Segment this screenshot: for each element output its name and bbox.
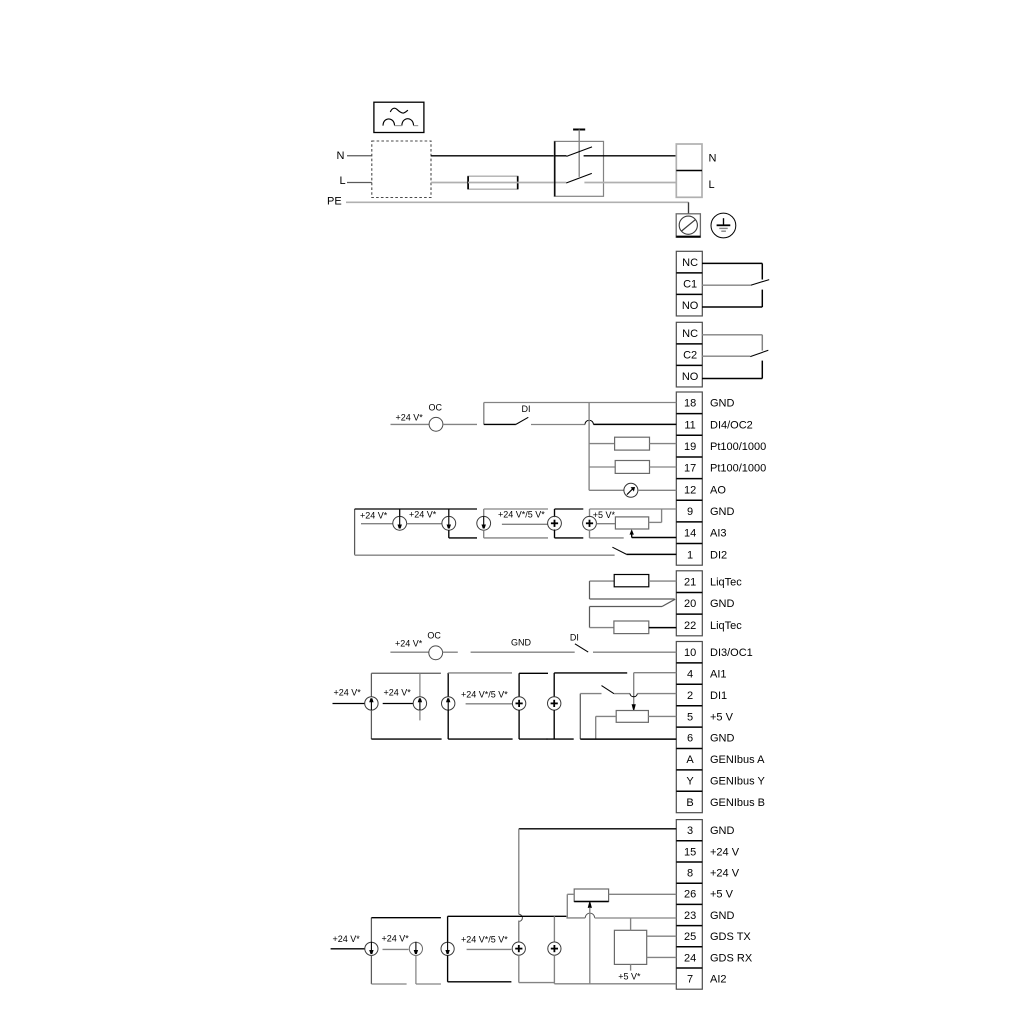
svg-text:23: 23 xyxy=(684,910,696,922)
svg-text:DI3/OC1: DI3/OC1 xyxy=(710,647,753,659)
svg-text:A: A xyxy=(686,754,694,766)
svg-text:+24 V*: +24 V* xyxy=(395,639,423,649)
svg-text:3: 3 xyxy=(687,825,693,837)
svg-text:GDS RX: GDS RX xyxy=(710,952,753,964)
svg-text:22: 22 xyxy=(684,620,696,632)
svg-text:Pt100/1000: Pt100/1000 xyxy=(710,441,766,453)
svg-text:AO: AO xyxy=(710,484,726,496)
svg-text:DI: DI xyxy=(522,404,531,414)
svg-text:DI4/OC2: DI4/OC2 xyxy=(710,419,753,431)
svg-text:Y: Y xyxy=(686,776,694,788)
svg-text:+5 V: +5 V xyxy=(710,889,734,901)
svg-text:+24 V: +24 V xyxy=(710,868,740,880)
svg-text:N: N xyxy=(709,153,717,165)
svg-text:15: 15 xyxy=(684,846,696,858)
svg-text:2: 2 xyxy=(687,690,693,702)
svg-text:GND: GND xyxy=(710,598,735,610)
svg-text:+24 V*: +24 V* xyxy=(382,934,410,944)
svg-text:NO: NO xyxy=(682,300,699,312)
svg-text:5: 5 xyxy=(687,711,693,723)
svg-text:DI: DI xyxy=(570,633,579,643)
svg-text:C1: C1 xyxy=(683,279,697,291)
svg-text:N: N xyxy=(337,150,345,162)
svg-text:11: 11 xyxy=(684,419,695,431)
svg-text:OC: OC xyxy=(427,631,441,641)
svg-text:NO: NO xyxy=(682,371,699,383)
svg-text:NC: NC xyxy=(682,328,698,340)
svg-text:20: 20 xyxy=(684,598,696,610)
svg-text:NC: NC xyxy=(682,257,698,269)
svg-text:9: 9 xyxy=(687,506,693,518)
svg-text:AI2: AI2 xyxy=(710,974,727,986)
svg-text:GND: GND xyxy=(710,825,735,837)
svg-text:12: 12 xyxy=(684,484,696,496)
svg-text:PE: PE xyxy=(327,196,342,208)
svg-text:4: 4 xyxy=(687,669,693,681)
svg-text:+24 V*: +24 V* xyxy=(334,688,362,698)
svg-text:GND: GND xyxy=(710,506,735,518)
svg-text:L: L xyxy=(340,175,346,187)
svg-text:L: L xyxy=(709,179,715,191)
svg-text:+5 V*: +5 V* xyxy=(593,510,616,520)
svg-text:+24 V*: +24 V* xyxy=(396,413,424,423)
svg-text:+24 V: +24 V xyxy=(710,846,740,858)
svg-text:+24 V*: +24 V* xyxy=(360,510,388,520)
svg-text:LiqTec: LiqTec xyxy=(710,620,742,632)
svg-text:Pt100/1000: Pt100/1000 xyxy=(710,463,766,475)
svg-text:1: 1 xyxy=(687,549,693,561)
svg-text:7: 7 xyxy=(687,974,693,986)
svg-text:OC: OC xyxy=(429,403,443,413)
svg-text:AI3: AI3 xyxy=(710,528,727,540)
svg-text:21: 21 xyxy=(684,577,696,589)
svg-text:B: B xyxy=(686,797,693,809)
svg-text:+24 V*/5 V*: +24 V*/5 V* xyxy=(461,935,508,945)
svg-text:19: 19 xyxy=(684,441,696,453)
svg-text:+24 V*/5 V*: +24 V*/5 V* xyxy=(498,510,545,520)
svg-text:GDS TX: GDS TX xyxy=(710,931,751,943)
svg-text:17: 17 xyxy=(684,463,696,475)
svg-text:DI2: DI2 xyxy=(710,549,727,561)
svg-text:8: 8 xyxy=(687,868,693,880)
svg-text:GENIbus A: GENIbus A xyxy=(710,754,765,766)
svg-text:25: 25 xyxy=(684,931,696,943)
svg-text:24: 24 xyxy=(684,952,696,964)
svg-text:LiqTec: LiqTec xyxy=(710,577,742,589)
svg-text:C2: C2 xyxy=(683,350,697,362)
svg-text:14: 14 xyxy=(684,528,696,540)
svg-text:GND: GND xyxy=(710,398,735,410)
svg-text:GENIbus B: GENIbus B xyxy=(710,797,765,809)
svg-text:GND: GND xyxy=(710,733,735,745)
svg-text:GENIbus Y: GENIbus Y xyxy=(710,776,765,788)
svg-text:+5 V: +5 V xyxy=(710,711,734,723)
svg-text:GND: GND xyxy=(511,638,532,648)
svg-text:+5 V*: +5 V* xyxy=(618,972,641,982)
svg-text:6: 6 xyxy=(687,733,693,745)
svg-text:+24 V*/5 V*: +24 V*/5 V* xyxy=(461,690,508,700)
svg-text:+24 V*: +24 V* xyxy=(333,934,361,944)
svg-text:+24 V*: +24 V* xyxy=(384,688,412,698)
svg-text:DI1: DI1 xyxy=(710,690,727,702)
svg-text:+24 V*: +24 V* xyxy=(409,510,437,520)
svg-text:10: 10 xyxy=(684,647,696,659)
svg-text:AI1: AI1 xyxy=(710,669,727,681)
svg-text:GND: GND xyxy=(710,910,735,922)
svg-text:18: 18 xyxy=(684,398,696,410)
svg-text:26: 26 xyxy=(684,889,696,901)
